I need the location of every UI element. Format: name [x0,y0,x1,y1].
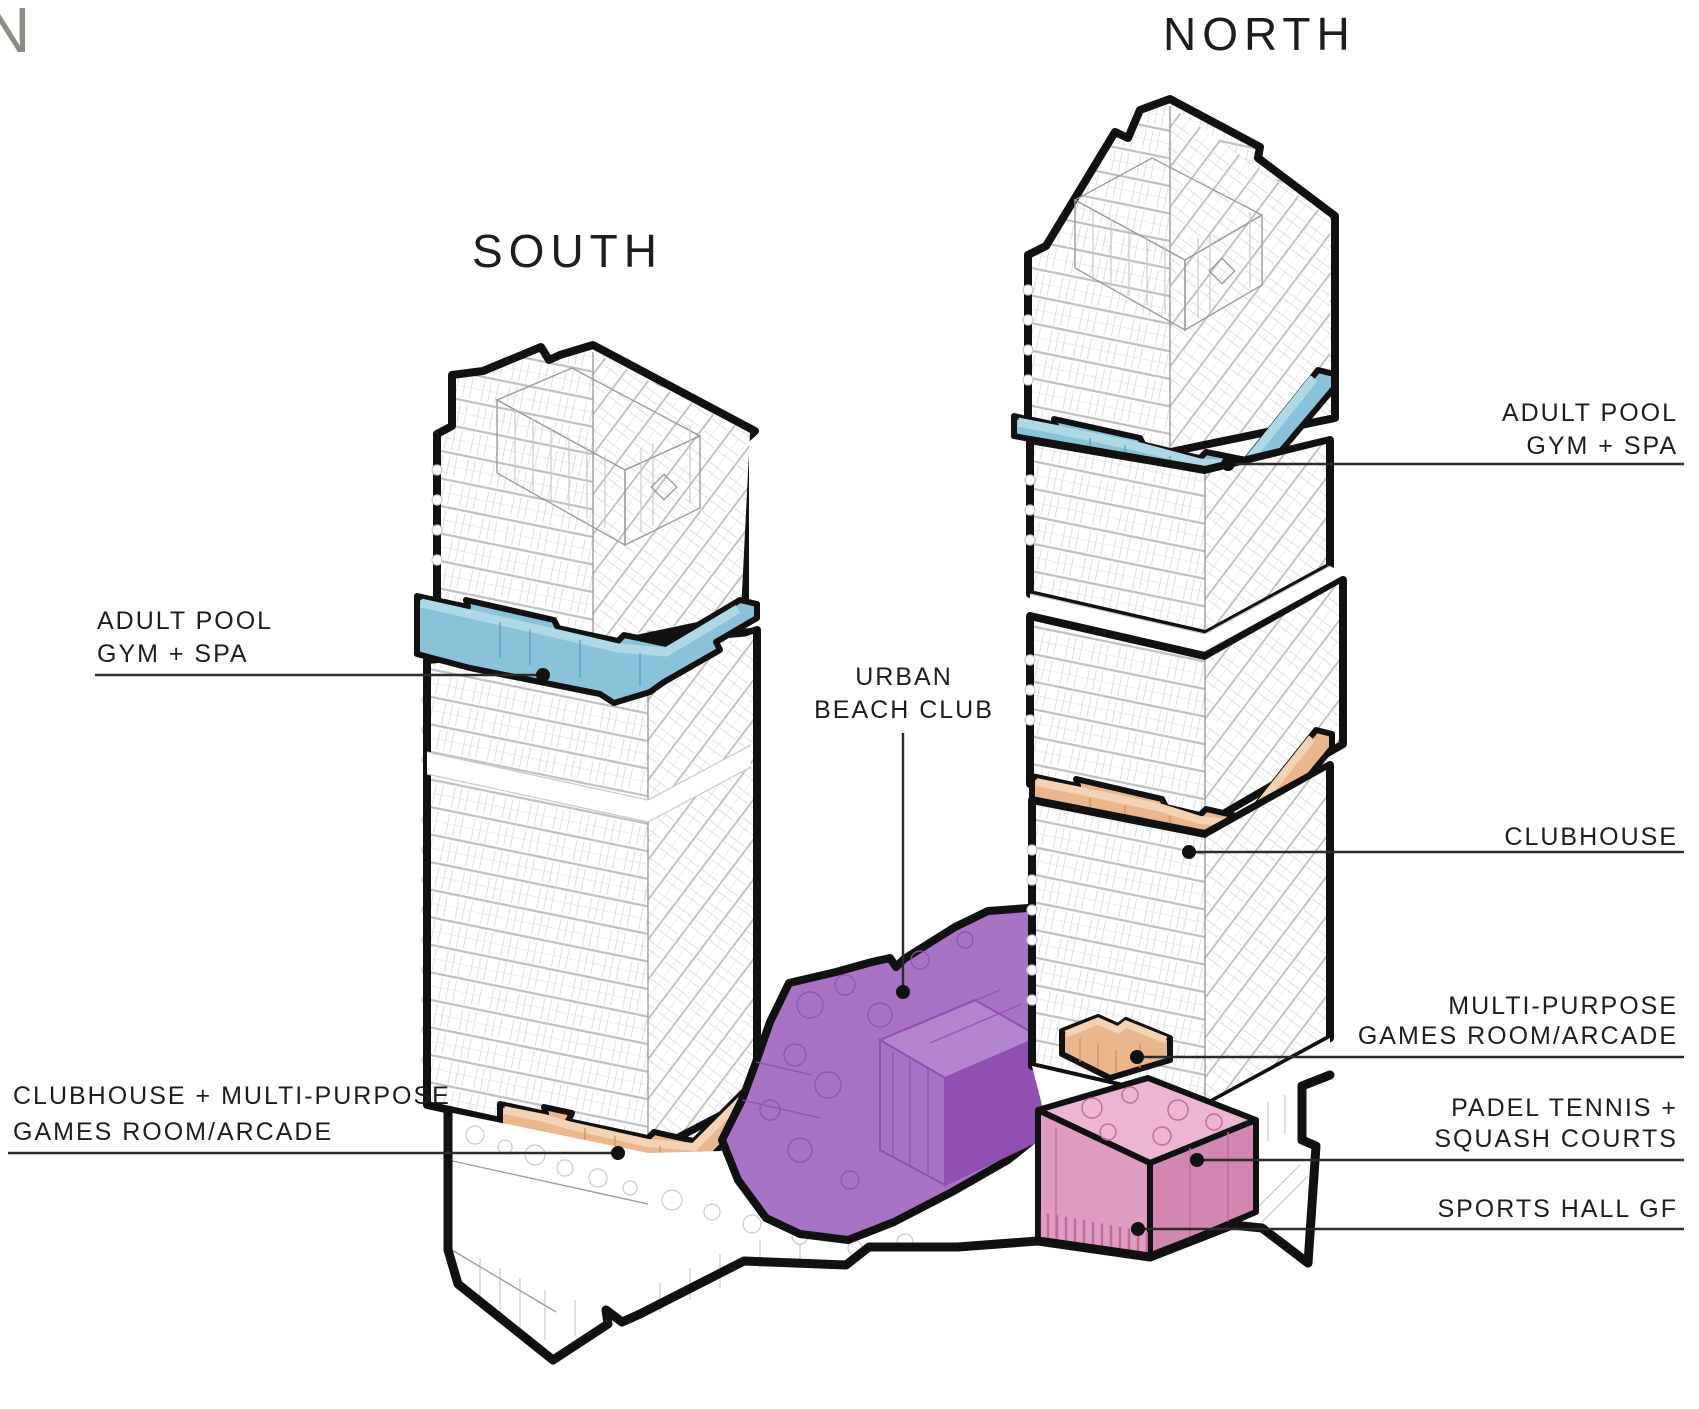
svg-text:ADULT POOL: ADULT POOL [1502,399,1678,427]
svg-text:CLUBHOUSE + MULTI-PURPOSE: CLUBHOUSE + MULTI-PURPOSE [13,1082,451,1110]
svg-text:GAMES ROOM/ARCADE: GAMES ROOM/ARCADE [13,1118,333,1146]
north-tower-title: NORTH [1163,8,1356,60]
svg-text:GYM + SPA: GYM + SPA [97,640,249,668]
label-clubhouse-games-south: CLUBHOUSE + MULTI-PURPOSE GAMES ROOM/ARC… [13,1082,451,1146]
svg-text:URBAN: URBAN [855,663,953,691]
north-tower [1014,99,1343,1106]
label-sports-hall: SPORTS HALL GF [1437,1195,1678,1223]
label-games-room-north: MULTI-PURPOSE GAMES ROOM/ARCADE [1358,992,1678,1050]
label-padel: PADEL TENNIS + SQUASH COURTS [1434,1094,1678,1153]
south-tower-title: SOUTH [472,225,663,277]
svg-text:ADULT POOL: ADULT POOL [97,607,273,635]
label-adult-pool-north: ADULT POOL GYM + SPA [1502,399,1678,460]
cropped-heading-letter: N [0,0,34,66]
svg-text:GAMES ROOM/ARCADE: GAMES ROOM/ARCADE [1358,1022,1678,1050]
label-urban-beach-club: URBAN BEACH CLUB [814,663,994,724]
label-clubhouse-north: CLUBHOUSE [1504,823,1678,851]
south-upper-right-face [593,352,750,642]
south-tower [417,345,757,1192]
urban-beach-club-zone [722,907,1048,1240]
amenities-axonometric-diagram: N SOUTH NORTH ADULT POOL GYM + SPA CLUBH… [0,0,1699,1409]
svg-text:SQUASH COURTS: SQUASH COURTS [1434,1125,1678,1153]
svg-text:BEACH CLUB: BEACH CLUB [814,696,994,724]
svg-text:MULTI-PURPOSE: MULTI-PURPOSE [1448,992,1678,1020]
south-lower-right-face [648,634,753,1149]
svg-text:PADEL TENNIS +: PADEL TENNIS + [1451,1094,1678,1122]
svg-text:GYM + SPA: GYM + SPA [1526,432,1678,460]
label-adult-pool-south: ADULT POOL GYM + SPA [97,607,273,668]
